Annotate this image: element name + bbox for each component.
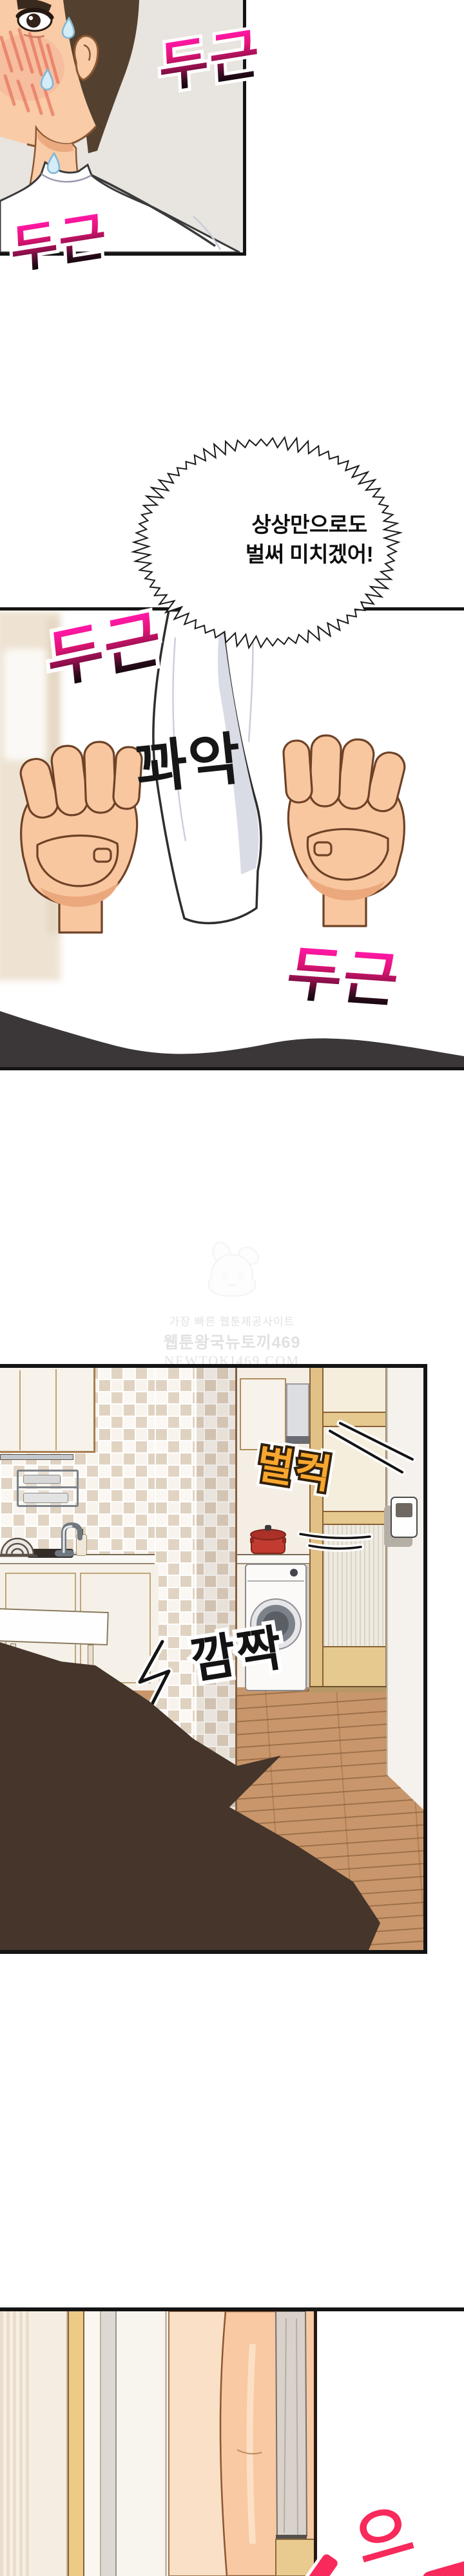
site-watermark: 가장 빠른 웹툰제공사이트 웹툰왕국뉴토끼469 NEWTOKI469.COM [103,1242,361,1369]
sfx-heartbeat-4: 두근 두근 [283,944,403,1010]
sfx-heartbeat-1: 두근 두근 [158,25,262,95]
sfx-grip: 꽈악 [133,730,245,798]
watermark-tagline: 가장 빠른 웹툰제공사이트 [103,1312,361,1329]
speech-text: 상상만으로도 벌써 미치겠어! [232,510,387,569]
sfx-text: 두근 [158,25,262,95]
pants [0,1011,464,1067]
webtoon-page: 두근 두근 두근 두근 상상만으로도 벌써 미치겠어! [0,0,464,2576]
right-fist [283,735,408,926]
sfx-heartbeat-2: 두근 두근 [10,210,109,277]
sfx-gasp: 으 으 [349,2500,421,2575]
speech-bubble: 상상만으로도 벌써 미치겠어! [125,428,421,672]
watermark-sitename: 웹툰왕국뉴토끼469 [103,1330,361,1353]
dish-rack [0,1539,37,1556]
sfx-gasp-stroke-right [416,2553,464,2576]
panel4-border-top [0,2307,464,2311]
speech-line-1: 상상만으로도 [232,510,387,540]
far-leg [169,2311,227,2576]
legs-illustration [0,2311,317,2576]
foreground-silhouette [0,1642,380,1950]
panel-doorway-legs [0,2311,317,2576]
iris [26,14,41,28]
sfx-text: 두근 [10,210,109,277]
sfx-text: 으 [349,2500,421,2575]
panel-right-edge [314,2311,317,2576]
towel-seam [276,2535,307,2539]
panel2-border-bottom [0,1067,464,1070]
towel [276,2311,307,2538]
faucet [58,1525,80,1553]
sfx-text: 두근 [283,944,403,1010]
watermark-mascot [193,1242,271,1312]
speech-line-2: 벌써 미치겠어! [232,540,387,569]
sfx-text: 꽈악 [133,730,245,798]
